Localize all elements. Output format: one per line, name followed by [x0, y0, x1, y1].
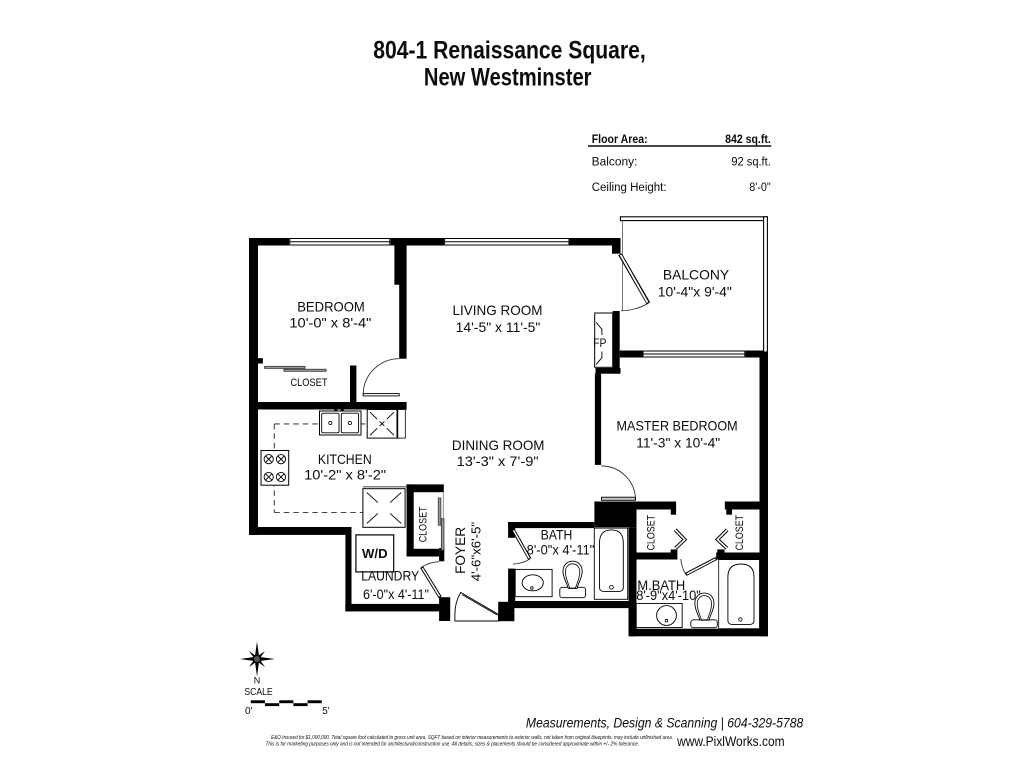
- svg-text:804-1 Renaissance Square,: 804-1 Renaissance Square,: [373, 37, 646, 65]
- svg-text:FOYER: FOYER: [452, 527, 468, 574]
- svg-text:CLOSET: CLOSET: [734, 515, 746, 551]
- svg-text:11'-3" x 10'-4": 11'-3" x 10'-4": [636, 436, 720, 451]
- svg-text:5': 5': [322, 706, 330, 717]
- svg-text:W/D: W/D: [362, 547, 388, 561]
- svg-text:14'-5" x 11'-5": 14'-5" x 11'-5": [456, 320, 541, 335]
- svg-text:LAUNDRY: LAUNDRY: [361, 568, 420, 584]
- svg-text:This is for marketing purposes: This is for marketing purposes only and …: [266, 742, 640, 748]
- svg-text:CLOSET: CLOSET: [646, 515, 658, 551]
- svg-text:13'-3" x 7'-9": 13'-3" x 7'-9": [457, 454, 539, 469]
- svg-text:BALCONY: BALCONY: [663, 267, 730, 283]
- svg-text:BEDROOM: BEDROOM: [297, 299, 365, 315]
- svg-text:SCALE: SCALE: [244, 687, 273, 698]
- svg-text:8'-9"x4'-10": 8'-9"x4'-10": [636, 588, 701, 603]
- svg-text:E&O Insured for $1,000,000. T: E&O Insured for $1,000,000. Total square…: [271, 735, 673, 741]
- svg-text:6'-0"x 4'-11": 6'-0"x 4'-11": [363, 587, 429, 602]
- svg-text:842 sq.ft.: 842 sq.ft.: [725, 134, 771, 146]
- svg-text:Floor Area:: Floor Area:: [592, 134, 648, 146]
- svg-text:New Westminster: New Westminster: [424, 63, 592, 91]
- svg-text:N: N: [254, 676, 261, 686]
- svg-text:Measurements, Design & Scannin: Measurements, Design & Scanning | 604-32…: [526, 716, 804, 731]
- svg-text:CLOSET: CLOSET: [290, 377, 327, 389]
- svg-text:LIVING ROOM: LIVING ROOM: [453, 302, 543, 318]
- svg-text:92 sq.ft.: 92 sq.ft.: [731, 157, 770, 169]
- svg-text:8'-0"x 4'-11": 8'-0"x 4'-11": [527, 542, 595, 557]
- svg-text:FP: FP: [593, 338, 607, 350]
- svg-text:4'-6"x6'-5": 4'-6"x6'-5": [469, 522, 483, 581]
- svg-text:KITCHEN: KITCHEN: [318, 451, 372, 467]
- svg-text:10'-4"x 9'-4": 10'-4"x 9'-4": [658, 285, 732, 300]
- svg-text:10'-2" x 8'-2": 10'-2" x 8'-2": [304, 468, 386, 483]
- svg-text:www.PixlWorks.com: www.PixlWorks.com: [676, 734, 784, 749]
- svg-text:8'-0": 8'-0": [749, 182, 771, 194]
- svg-text:Ceiling Height:: Ceiling Height:: [592, 182, 667, 194]
- svg-text:DINING ROOM: DINING ROOM: [452, 437, 545, 453]
- svg-text:Balcony:: Balcony:: [592, 157, 638, 169]
- svg-text:MASTER BEDROOM: MASTER BEDROOM: [617, 417, 738, 433]
- svg-text:10'-0" x 8'-4": 10'-0" x 8'-4": [289, 316, 371, 331]
- svg-text:CLOSET: CLOSET: [417, 506, 429, 542]
- svg-text:BATH: BATH: [541, 527, 573, 543]
- svg-text:0': 0': [245, 706, 253, 717]
